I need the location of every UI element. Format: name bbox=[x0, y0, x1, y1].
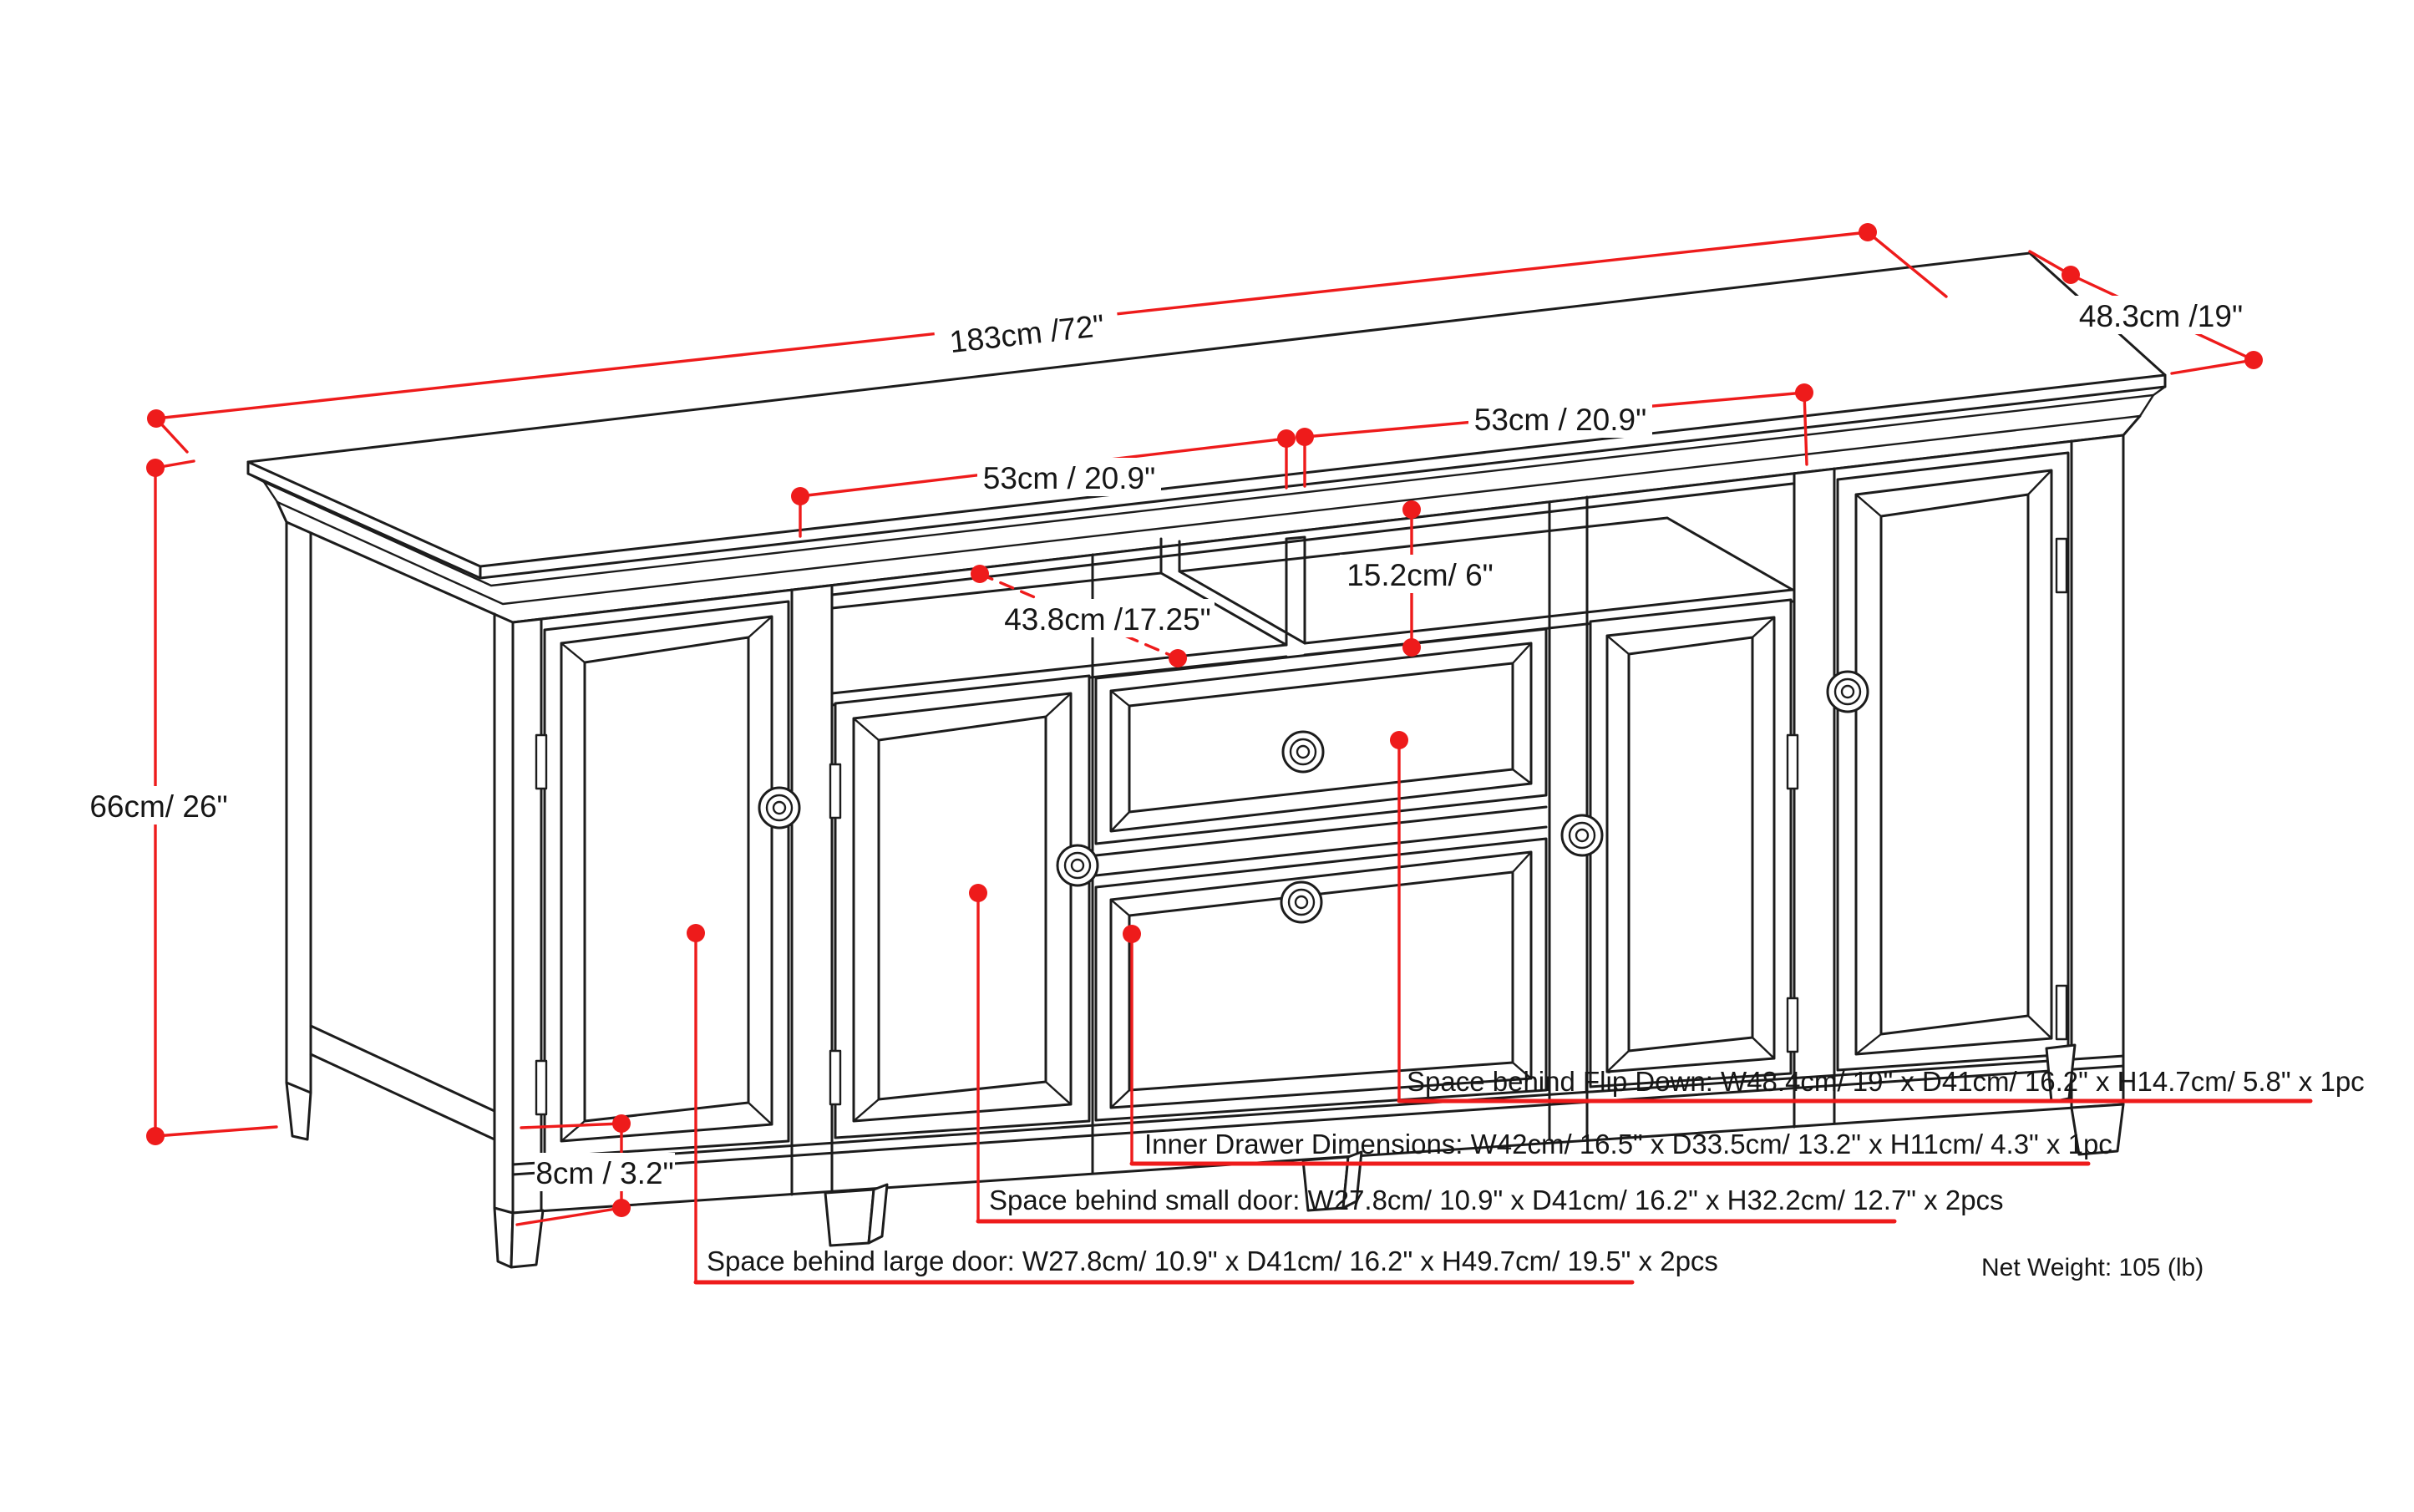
knob-flip-down-drawer bbox=[1283, 732, 1323, 772]
knob-right-small-door bbox=[1562, 815, 1602, 855]
diagram-canvas: 183cm /72" 48.3cm /19" 66cm/ 26" 53cm / … bbox=[0, 0, 2414, 1512]
tv-stand-drawing bbox=[248, 253, 2165, 1267]
knob-bottom-drawer bbox=[1281, 882, 1321, 922]
large-door-note: Space behind large door: W27.8cm/ 10.9" … bbox=[707, 1246, 1718, 1276]
front-left-foot bbox=[511, 1210, 543, 1267]
left-small-door bbox=[835, 676, 1089, 1138]
middle-foot-1 bbox=[825, 1190, 874, 1246]
knob-right-large-door bbox=[1828, 672, 1868, 712]
right-small-door bbox=[1590, 600, 1791, 1087]
right-large-door bbox=[1838, 453, 2068, 1070]
inner-drawer-note: Inner Drawer Dimensions: W42cm/ 16.5" x … bbox=[1144, 1129, 2112, 1159]
shelf-opening-height-label: 15.2cm/ 6" bbox=[1346, 558, 1494, 592]
tv-stand-dimension-diagram: 183cm /72" 48.3cm /19" 66cm/ 26" 53cm / … bbox=[0, 0, 2414, 1512]
small-door-note: Space behind small door: W27.8cm/ 10.9" … bbox=[989, 1185, 2004, 1215]
overall-height-label: 66cm/ 26" bbox=[89, 789, 227, 824]
left-large-door bbox=[545, 601, 789, 1157]
left-side-panel bbox=[287, 522, 513, 1267]
right-shelf-width-label: 53cm / 20.9" bbox=[1474, 403, 1646, 437]
left-shelf-width-label: 53cm / 20.9" bbox=[983, 461, 1155, 495]
left-back-foot bbox=[287, 1083, 311, 1139]
shelf-depth-label: 43.8cm /17.25" bbox=[1004, 602, 1211, 637]
flip-down-note: Space behind Flip Down: W48.4cm/ 19" x D… bbox=[1407, 1066, 2365, 1097]
knob-left-large-door bbox=[759, 788, 799, 828]
net-weight: Net Weight: 105 (lb) bbox=[1981, 1254, 2204, 1281]
leg-height-label: 8cm / 3.2" bbox=[535, 1156, 673, 1190]
knob-left-small-door bbox=[1057, 845, 1098, 885]
left-front-foot-side bbox=[494, 1208, 513, 1267]
top-length-label: 183cm /72" bbox=[948, 308, 1106, 359]
top-depth-label: 48.3cm /19" bbox=[2079, 299, 2243, 333]
